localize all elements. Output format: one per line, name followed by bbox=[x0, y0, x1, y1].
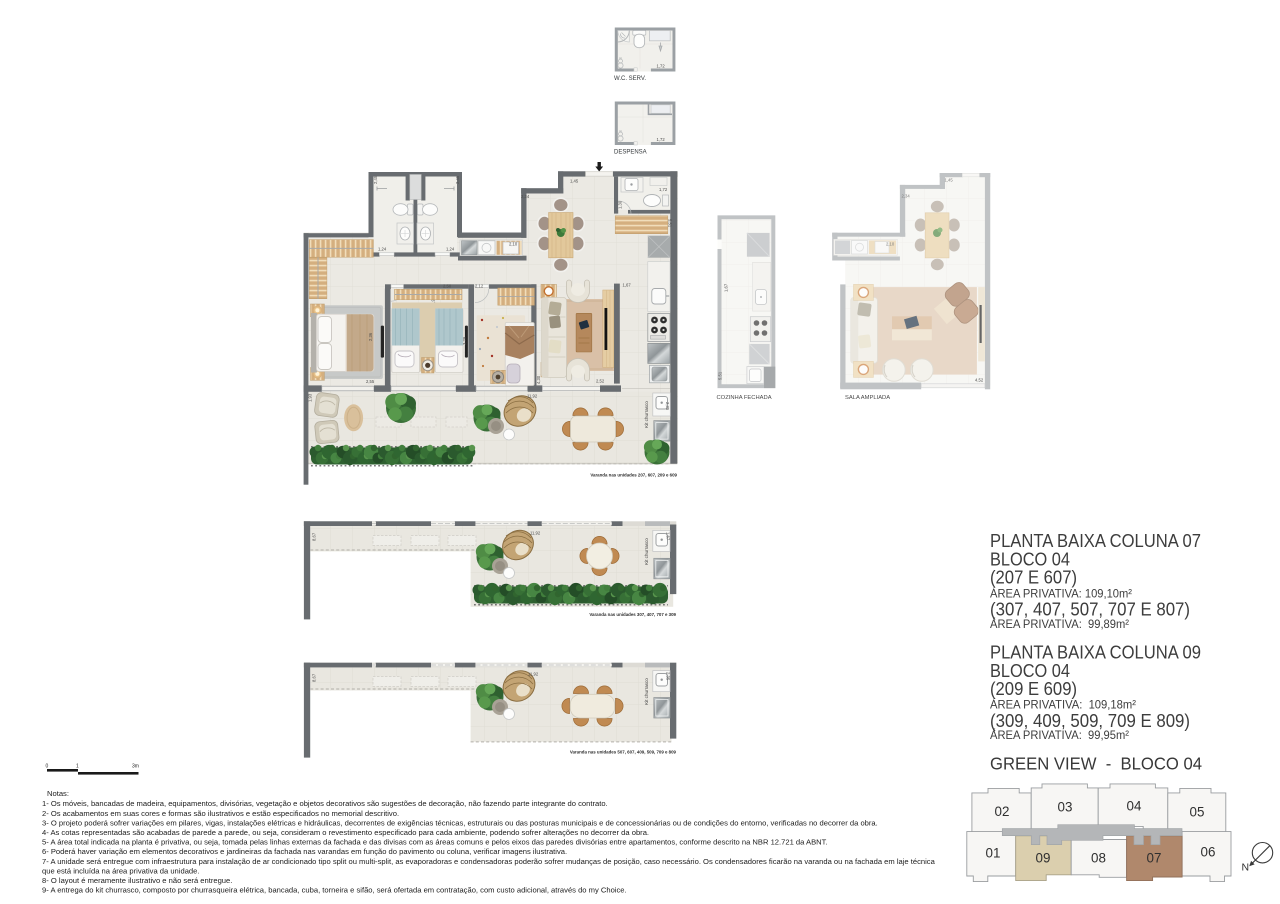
svg-text:Notas:: Notas: bbox=[47, 789, 69, 798]
svg-text:Kit churrasco: Kit churrasco bbox=[644, 401, 649, 428]
svg-text:Varanda nas unidades 207, 607,: Varanda nas unidades 207, 607, 209 e 609 bbox=[590, 473, 677, 478]
svg-text:2- Os acabamentos em suas core: 2- Os acabamentos em suas cores e formas… bbox=[42, 809, 399, 818]
svg-text:Kit churrasco: Kit churrasco bbox=[644, 678, 649, 705]
svg-text:6- Poderá haver variação em el: 6- Poderá haver variação em elementos de… bbox=[42, 847, 567, 856]
svg-text:2,50: 2,50 bbox=[443, 284, 452, 289]
svg-text:1,45: 1,45 bbox=[570, 179, 579, 184]
svg-text:3- O projeto poderá sofrer var: 3- O projeto poderá sofrer variações em … bbox=[42, 818, 878, 827]
svg-text:8- O layout é meramente ilustr: 8- O layout é meramente ilustrativo e nã… bbox=[42, 876, 232, 885]
svg-text:1,67: 1,67 bbox=[724, 283, 729, 292]
svg-text:W.C. SERV.: W.C. SERV. bbox=[614, 76, 646, 82]
svg-text:11,92: 11,92 bbox=[528, 672, 539, 677]
svg-text:11,92: 11,92 bbox=[530, 531, 541, 536]
svg-text:ÁREA PRIVATIVA: 99,89m²: ÁREA PRIVATIVA: 99,89m² bbox=[990, 616, 1129, 631]
svg-text:8,67: 8,67 bbox=[312, 532, 317, 541]
svg-text:SALA AMPLIADA: SALA AMPLIADA bbox=[845, 395, 890, 401]
svg-text:06: 06 bbox=[1201, 845, 1216, 860]
svg-text:4,52: 4,52 bbox=[975, 378, 984, 383]
svg-text:0: 0 bbox=[46, 764, 49, 770]
svg-text:8,67: 8,67 bbox=[312, 673, 317, 682]
svg-text:2,10: 2,10 bbox=[509, 242, 518, 247]
svg-text:GREEN VIEW - BLOCO 04: GREEN VIEW - BLOCO 04 bbox=[990, 754, 1202, 774]
svg-text:4,30: 4,30 bbox=[536, 375, 541, 384]
svg-text:COZINHA FECHADA: COZINHA FECHADA bbox=[717, 395, 772, 401]
svg-text:1,30: 1,30 bbox=[618, 200, 623, 209]
svg-text:04: 04 bbox=[1127, 799, 1142, 814]
svg-text:2,45: 2,45 bbox=[373, 175, 378, 184]
svg-text:5- A área total indicada na pl: 5- A área total indicada na planta é pri… bbox=[42, 838, 828, 847]
svg-text:05: 05 bbox=[1190, 805, 1205, 820]
svg-text:1,72: 1,72 bbox=[657, 64, 666, 69]
svg-text:1,72: 1,72 bbox=[659, 187, 668, 192]
svg-text:3,29: 3,29 bbox=[462, 336, 467, 345]
svg-text:2,34: 2,34 bbox=[902, 194, 911, 199]
svg-text:07: 07 bbox=[1147, 851, 1162, 866]
svg-text:(209 E 609): (209 E 609) bbox=[990, 678, 1077, 699]
svg-text:1,67: 1,67 bbox=[666, 532, 671, 541]
svg-text:2,12: 2,12 bbox=[475, 284, 484, 289]
svg-text:9- A entrega do kit churrasco,: 9- A entrega do kit churrasco, composto … bbox=[42, 886, 627, 895]
svg-text:Varanda nas unidades 507, 607,: Varanda nas unidades 507, 607, 409, 509,… bbox=[570, 750, 677, 755]
svg-text:08: 08 bbox=[1091, 851, 1106, 866]
svg-text:N: N bbox=[1242, 862, 1250, 874]
svg-text:2,52: 2,52 bbox=[596, 379, 605, 384]
svg-text:1,67: 1,67 bbox=[623, 283, 632, 288]
svg-text:2,35: 2,35 bbox=[665, 402, 670, 411]
svg-text:3m: 3m bbox=[132, 764, 139, 770]
svg-text:09: 09 bbox=[1036, 851, 1051, 866]
svg-text:DESPENSA: DESPENSA bbox=[614, 150, 647, 156]
svg-text:1- Os móveis, bancadas de made: 1- Os móveis, bancadas de madeira, equip… bbox=[42, 799, 608, 808]
svg-text:4- As cotas representadas são: 4- As cotas representadas são acabadas d… bbox=[42, 828, 649, 837]
svg-text:5,51: 5,51 bbox=[668, 219, 673, 228]
svg-text:que está incluída na área priv: que está incluída na área privativa da u… bbox=[42, 866, 199, 875]
svg-text:2,35: 2,35 bbox=[666, 672, 671, 681]
svg-text:01: 01 bbox=[986, 846, 1001, 861]
svg-text:2,10: 2,10 bbox=[886, 242, 895, 247]
svg-text:1,45: 1,45 bbox=[945, 178, 954, 183]
svg-text:1,24: 1,24 bbox=[378, 247, 387, 252]
svg-text:Varanda nas unidades 307, 407,: Varanda nas unidades 307, 407, 707 e 309 bbox=[589, 612, 676, 617]
svg-text:Kit churrasco: Kit churrasco bbox=[644, 538, 649, 565]
svg-text:02: 02 bbox=[995, 804, 1010, 819]
svg-text:2,55: 2,55 bbox=[366, 379, 375, 384]
svg-text:11,92: 11,92 bbox=[527, 394, 538, 399]
svg-text:1: 1 bbox=[76, 764, 79, 770]
svg-text:2,45: 2,45 bbox=[455, 175, 460, 184]
svg-text:7- A unidade será entregue com: 7- A unidade será entregue com infraestr… bbox=[42, 857, 936, 866]
svg-text:1,72: 1,72 bbox=[657, 137, 666, 142]
svg-text:1,24: 1,24 bbox=[446, 247, 455, 252]
svg-text:5,51: 5,51 bbox=[718, 371, 723, 380]
svg-text:03: 03 bbox=[1058, 800, 1073, 815]
svg-text:2,36: 2,36 bbox=[368, 332, 373, 341]
svg-text:(207 E 607): (207 E 607) bbox=[990, 567, 1077, 588]
svg-text:ÁREA PRIVATIVA: 99,95m²: ÁREA PRIVATIVA: 99,95m² bbox=[990, 727, 1129, 742]
svg-text:1,93: 1,93 bbox=[308, 393, 313, 402]
svg-text:2,34: 2,34 bbox=[521, 194, 530, 199]
